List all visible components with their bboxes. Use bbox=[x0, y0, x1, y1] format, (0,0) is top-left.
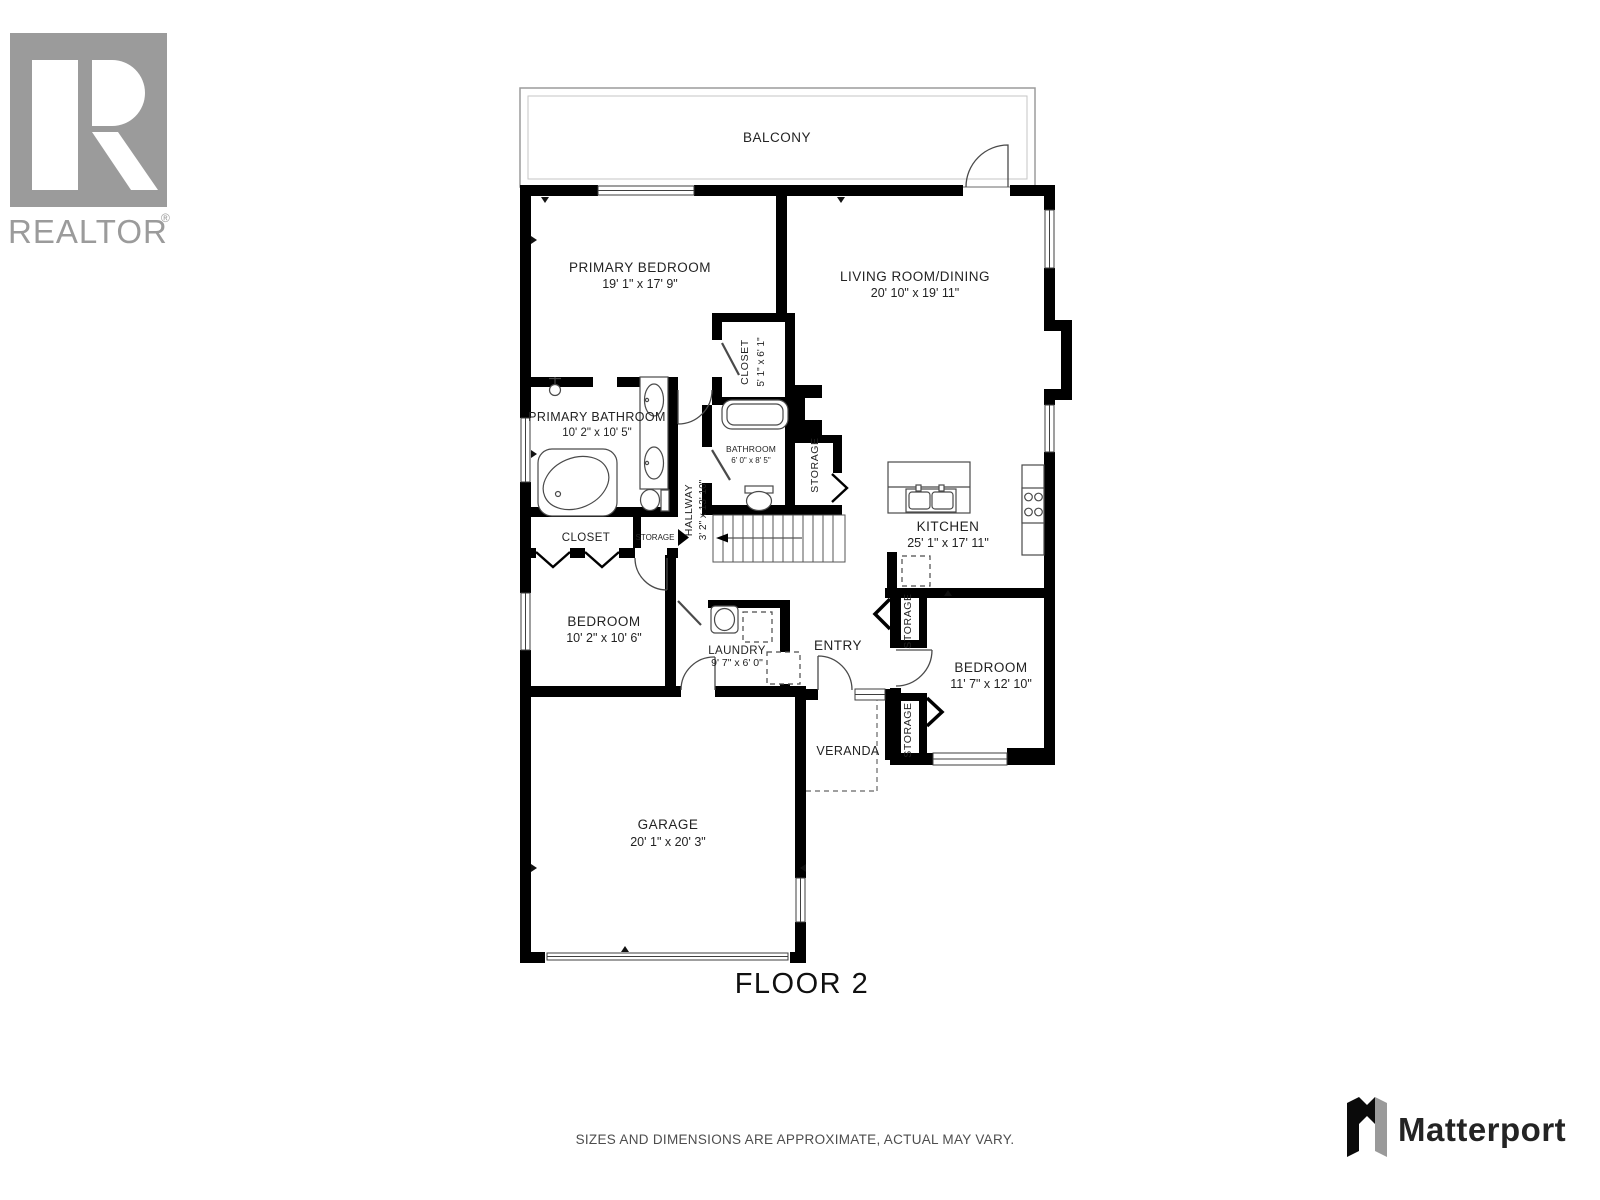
floor-plan-page: REALTOR ® bbox=[0, 0, 1600, 1200]
realtor-logo: REALTOR ® bbox=[8, 33, 170, 250]
room-dims-laundry: 9' 7" x 6' 0" bbox=[711, 657, 763, 669]
closet-bifold-right bbox=[585, 552, 619, 567]
room-dims-bathroom: 6' 0" x 8' 5" bbox=[731, 456, 771, 465]
room-label-garage: GARAGE bbox=[638, 817, 699, 832]
stairs bbox=[713, 515, 845, 562]
bedroom-left-door bbox=[635, 558, 667, 590]
room-label-storage-bath: STORAGE bbox=[809, 437, 821, 492]
room-label-bedroom-right: BEDROOM bbox=[954, 660, 1027, 675]
room-dims-living-dining: 20' 10" x 19' 11" bbox=[871, 286, 959, 300]
room-dims-kitchen: 25' 1" x 17' 11" bbox=[907, 536, 989, 550]
bedroom-right-door bbox=[896, 650, 932, 686]
realtor-registered-icon: ® bbox=[161, 211, 170, 225]
garage-entry-door bbox=[681, 657, 715, 690]
storage-top-bifold bbox=[875, 599, 890, 629]
windows bbox=[521, 186, 1054, 960]
toilet-icon bbox=[747, 492, 772, 511]
dryer-icon bbox=[767, 652, 800, 684]
balcony-door bbox=[966, 145, 1008, 187]
laundry-door bbox=[678, 601, 701, 625]
room-label-hallway: HALLWAY bbox=[683, 484, 695, 536]
wall-notch bbox=[805, 398, 822, 420]
room-label-storage-hall: STORAGE bbox=[636, 533, 675, 542]
room-label-primary-bedroom: PRIMARY BEDROOM bbox=[569, 260, 711, 275]
room-label-primary-bathroom: PRIMARY BATHROOM bbox=[528, 410, 666, 424]
room-dims-primary-bathroom: 10' 2" x 10' 5" bbox=[562, 427, 631, 439]
room-label-veranda: VERANDA bbox=[816, 744, 879, 758]
room-dims-bedroom-right: 11' 7" x 12' 10" bbox=[950, 677, 1032, 691]
room-label-bedroom-left: BEDROOM bbox=[567, 614, 640, 629]
room-label-balcony: BALCONY bbox=[743, 130, 811, 145]
room-dims-bedroom-left: 10' 2" x 10' 6" bbox=[566, 631, 642, 645]
closet-bifold-left bbox=[536, 552, 570, 567]
room-dims-garage: 20' 1" x 20' 3" bbox=[630, 835, 706, 849]
room-label-closet-upper: CLOSET bbox=[739, 339, 751, 385]
appliance-dashed-icon bbox=[902, 556, 930, 586]
room-dims-closet-upper: 5' 1" x 6' 1" bbox=[756, 337, 767, 387]
washer-icon bbox=[743, 612, 772, 642]
floor-title: FLOOR 2 bbox=[735, 968, 870, 1000]
shower-head-icon bbox=[550, 385, 561, 396]
toilet-tank-icon bbox=[661, 490, 669, 511]
room-label-bathroom: BATHROOM bbox=[726, 444, 776, 454]
room-label-storage-top: STORAGE bbox=[902, 593, 914, 648]
room-label-entry: ENTRY bbox=[814, 638, 862, 653]
walls bbox=[520, 185, 1072, 963]
storage-bottom-bifold bbox=[927, 698, 942, 726]
closet-door bbox=[722, 343, 739, 375]
room-label-kitchen: KITCHEN bbox=[917, 519, 980, 534]
realtor-wordmark: REALTOR bbox=[8, 213, 168, 250]
room-label-living-dining: LIVING ROOM/DINING bbox=[840, 269, 990, 284]
matterport-icon bbox=[1347, 1097, 1387, 1157]
room-label-laundry: LAUNDRY bbox=[708, 645, 766, 657]
matterport-logo: Matterport bbox=[1347, 1097, 1566, 1157]
room-dims-primary-bedroom: 19' 1" x 17' 9" bbox=[602, 277, 678, 291]
bathroom-door bbox=[712, 450, 730, 480]
toilet-icon bbox=[641, 490, 660, 511]
storage-bath-bifold bbox=[832, 474, 847, 502]
matterport-wordmark: Matterport bbox=[1398, 1111, 1566, 1148]
floor-plan-svg: REALTOR ® bbox=[0, 0, 1600, 1200]
room-dims-hallway: 3' 2" x 13' 10" bbox=[698, 479, 709, 540]
disclaimer-text: SIZES AND DIMENSIONS ARE APPROXIMATE, AC… bbox=[576, 1132, 1015, 1147]
room-label-storage-bottom: STORAGE bbox=[902, 702, 914, 757]
room-label-closet-hall: CLOSET bbox=[562, 532, 610, 544]
entry-door bbox=[818, 656, 852, 690]
